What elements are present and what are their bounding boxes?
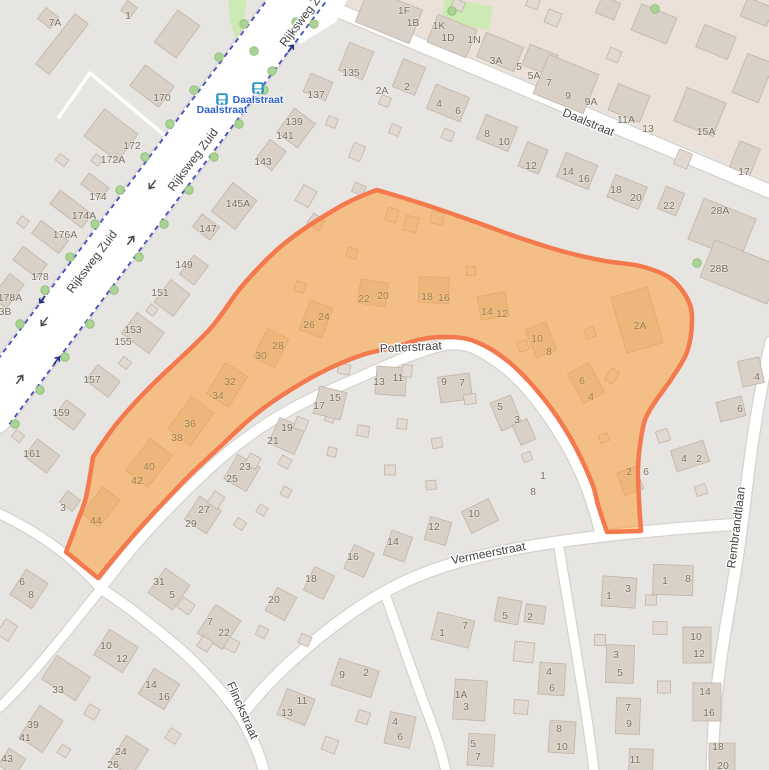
svg-text:18: 18 [610, 184, 622, 196]
svg-text:174: 174 [89, 191, 107, 203]
svg-text:Daalstraat: Daalstraat [197, 104, 248, 116]
svg-text:10: 10 [100, 640, 112, 652]
svg-text:5: 5 [497, 401, 503, 413]
svg-text:4: 4 [436, 98, 442, 110]
svg-text:178A: 178A [0, 292, 22, 304]
svg-text:3: 3 [463, 701, 469, 713]
svg-text:172A: 172A [101, 154, 126, 166]
svg-text:5: 5 [470, 738, 476, 750]
svg-text:1: 1 [606, 590, 612, 602]
svg-text:5: 5 [516, 61, 522, 73]
svg-text:14: 14 [481, 306, 493, 318]
svg-text:159: 159 [52, 407, 70, 419]
svg-text:1N: 1N [467, 34, 480, 46]
svg-text:15: 15 [329, 392, 341, 404]
svg-text:10: 10 [556, 741, 568, 753]
svg-text:2: 2 [626, 466, 632, 478]
svg-text:14: 14 [699, 686, 711, 698]
svg-text:11: 11 [630, 754, 641, 766]
svg-text:4: 4 [392, 716, 398, 728]
svg-text:6: 6 [737, 403, 743, 415]
svg-text:7: 7 [475, 751, 481, 763]
svg-text:7: 7 [462, 620, 468, 632]
svg-text:1: 1 [662, 575, 668, 587]
svg-text:2: 2 [696, 453, 702, 465]
svg-text:24: 24 [318, 311, 330, 323]
svg-text:3B: 3B [0, 306, 11, 318]
svg-text:4: 4 [754, 371, 760, 383]
svg-text:3: 3 [613, 649, 619, 661]
svg-text:6: 6 [549, 682, 555, 694]
svg-text:1: 1 [439, 627, 445, 639]
svg-text:12: 12 [693, 648, 705, 660]
svg-text:16: 16 [347, 551, 359, 563]
svg-text:28A: 28A [711, 205, 730, 217]
svg-text:18: 18 [712, 741, 724, 753]
svg-text:155: 155 [114, 336, 132, 348]
svg-text:27: 27 [198, 504, 210, 516]
svg-text:7A: 7A [49, 17, 62, 29]
svg-text:147: 147 [199, 223, 217, 235]
svg-text:1K: 1K [433, 20, 446, 32]
svg-text:176A: 176A [53, 229, 78, 241]
svg-text:6: 6 [579, 375, 585, 387]
svg-text:4: 4 [588, 391, 594, 403]
svg-text:13: 13 [373, 376, 385, 388]
svg-text:157: 157 [83, 374, 101, 386]
svg-text:9: 9 [441, 376, 447, 388]
svg-text:151: 151 [151, 287, 169, 299]
svg-text:3A: 3A [490, 55, 503, 67]
svg-text:10: 10 [531, 333, 543, 345]
svg-text:17: 17 [313, 400, 325, 412]
svg-text:7: 7 [459, 377, 465, 389]
svg-text:161: 161 [23, 448, 41, 460]
svg-text:14: 14 [562, 166, 574, 178]
svg-text:1: 1 [540, 470, 546, 482]
svg-text:5: 5 [169, 589, 175, 601]
svg-text:1: 1 [125, 10, 131, 22]
svg-text:29: 29 [185, 518, 197, 530]
svg-text:44: 44 [90, 515, 102, 527]
svg-text:31: 31 [153, 576, 165, 588]
svg-text:10: 10 [690, 631, 702, 643]
svg-text:19: 19 [281, 422, 293, 434]
svg-text:4: 4 [546, 666, 552, 678]
svg-text:12: 12 [428, 521, 440, 533]
svg-text:7: 7 [207, 616, 213, 628]
svg-text:12: 12 [496, 308, 508, 320]
svg-text:30: 30 [255, 350, 267, 362]
svg-text:16: 16 [158, 691, 170, 703]
svg-text:43: 43 [1, 753, 13, 765]
svg-text:2A: 2A [376, 85, 389, 97]
svg-text:10: 10 [498, 136, 510, 148]
svg-text:170: 170 [153, 92, 171, 104]
svg-text:32: 32 [224, 376, 236, 388]
svg-text:4: 4 [681, 453, 687, 465]
svg-text:16: 16 [438, 292, 450, 304]
svg-text:10: 10 [468, 508, 480, 520]
svg-text:23: 23 [239, 461, 251, 473]
svg-text:5: 5 [617, 667, 623, 679]
svg-text:26: 26 [107, 759, 119, 770]
svg-text:15A: 15A [697, 126, 716, 138]
svg-text:7: 7 [546, 77, 552, 89]
svg-text:33: 33 [52, 684, 64, 696]
svg-text:40: 40 [143, 461, 155, 473]
svg-text:6: 6 [455, 105, 461, 117]
svg-text:28B: 28B [710, 263, 729, 275]
svg-text:20: 20 [377, 290, 389, 302]
svg-text:5A: 5A [528, 70, 541, 82]
svg-text:11: 11 [393, 372, 404, 384]
svg-text:9: 9 [339, 669, 345, 681]
svg-text:8: 8 [685, 573, 691, 585]
svg-text:42: 42 [131, 475, 143, 487]
svg-text:3: 3 [625, 583, 631, 595]
svg-text:3: 3 [60, 502, 66, 514]
svg-text:143: 143 [254, 156, 272, 168]
svg-text:39: 39 [27, 719, 39, 731]
svg-text:1D: 1D [441, 32, 455, 44]
svg-text:2: 2 [404, 81, 410, 93]
svg-text:1B: 1B [407, 17, 420, 29]
svg-text:135: 135 [342, 67, 360, 79]
svg-text:2: 2 [363, 667, 369, 679]
svg-text:145A: 145A [226, 198, 251, 210]
svg-text:21: 21 [267, 435, 279, 447]
svg-text:178: 178 [31, 271, 49, 283]
svg-text:18: 18 [421, 291, 433, 303]
svg-text:14: 14 [387, 536, 399, 548]
svg-text:28: 28 [272, 340, 284, 352]
svg-text:20: 20 [630, 192, 642, 204]
svg-text:17: 17 [738, 166, 750, 178]
svg-text:9: 9 [626, 718, 632, 730]
svg-text:20: 20 [268, 594, 280, 606]
svg-text:41: 41 [19, 732, 31, 744]
svg-text:38: 38 [171, 432, 183, 444]
svg-text:14: 14 [145, 679, 157, 691]
svg-text:149: 149 [175, 259, 193, 271]
svg-text:137: 137 [307, 89, 325, 101]
svg-text:25: 25 [226, 473, 238, 485]
svg-text:6: 6 [19, 576, 25, 588]
svg-text:34: 34 [212, 390, 224, 402]
svg-text:9: 9 [565, 90, 571, 102]
svg-text:5: 5 [502, 610, 508, 622]
svg-text:13: 13 [281, 707, 293, 719]
svg-text:16: 16 [578, 173, 590, 185]
svg-text:8: 8 [546, 346, 552, 358]
svg-text:172: 172 [123, 140, 141, 152]
svg-text:8: 8 [28, 589, 34, 601]
svg-text:3: 3 [514, 414, 520, 426]
svg-text:2A: 2A [634, 320, 647, 332]
svg-text:153: 153 [124, 324, 142, 336]
svg-text:36: 36 [184, 418, 196, 430]
svg-text:7: 7 [625, 702, 631, 714]
svg-text:22: 22 [218, 627, 230, 639]
svg-text:22: 22 [663, 200, 675, 212]
svg-text:12: 12 [116, 653, 128, 665]
svg-text:24: 24 [115, 746, 127, 758]
svg-text:6: 6 [643, 466, 649, 478]
svg-text:11: 11 [297, 695, 308, 707]
svg-text:174A: 174A [72, 210, 97, 222]
svg-text:2: 2 [527, 611, 533, 623]
svg-text:141: 141 [276, 130, 294, 142]
svg-text:13: 13 [642, 123, 654, 135]
svg-text:8: 8 [530, 486, 536, 498]
svg-text:9A: 9A [585, 96, 598, 108]
svg-text:8: 8 [484, 128, 490, 140]
svg-text:26: 26 [303, 319, 315, 331]
svg-text:16: 16 [703, 707, 715, 719]
svg-text:139: 139 [285, 116, 303, 128]
svg-text:20: 20 [717, 760, 729, 770]
svg-text:11A: 11A [617, 114, 635, 126]
svg-text:1F: 1F [398, 5, 410, 17]
svg-text:18: 18 [305, 573, 317, 585]
svg-text:8: 8 [556, 723, 562, 735]
svg-text:22: 22 [358, 293, 370, 305]
svg-text:1A: 1A [455, 689, 468, 701]
svg-text:12: 12 [525, 160, 537, 172]
svg-text:6: 6 [397, 731, 403, 743]
